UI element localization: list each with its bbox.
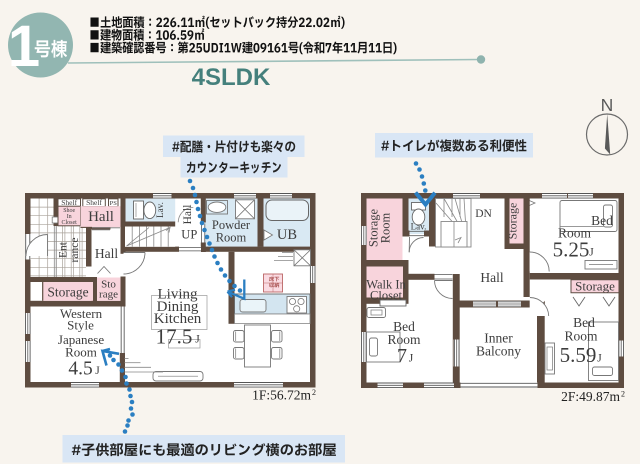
- svg-text:Hall: Hall: [182, 205, 194, 225]
- svg-text:5.59: 5.59: [560, 343, 597, 367]
- svg-text:4SLDK: 4SLDK: [192, 64, 271, 91]
- svg-text:Ent: Ent: [58, 241, 70, 258]
- svg-text:PS: PS: [110, 200, 118, 207]
- svg-text:Hall: Hall: [88, 209, 114, 225]
- svg-text:rage: rage: [99, 289, 118, 301]
- svg-text:Hall: Hall: [480, 270, 503, 285]
- svg-text:J: J: [597, 352, 602, 364]
- svg-text:Shelf: Shelf: [86, 198, 102, 207]
- svg-text:Room: Room: [216, 231, 247, 245]
- svg-text:Storage: Storage: [47, 285, 88, 300]
- svg-text:Lav.: Lav.: [411, 222, 427, 232]
- svg-text:Style: Style: [67, 318, 94, 333]
- svg-text:Storage: Storage: [575, 279, 615, 294]
- svg-text:5.25: 5.25: [553, 237, 590, 261]
- svg-text:J: J: [409, 353, 414, 365]
- svg-text:Hall: Hall: [95, 246, 118, 261]
- svg-text:17.5: 17.5: [156, 324, 193, 348]
- svg-text:UP: UP: [181, 228, 197, 242]
- svg-text:7: 7: [397, 345, 407, 367]
- svg-text:2: 2: [621, 390, 625, 399]
- svg-text:1F:56.72m: 1F:56.72m: [252, 388, 311, 403]
- svg-text:Storage: Storage: [506, 203, 520, 240]
- svg-text:1: 1: [8, 14, 40, 79]
- svg-text:Room: Room: [564, 329, 598, 344]
- svg-text:J: J: [589, 247, 594, 259]
- svg-text:Room: Room: [65, 345, 97, 360]
- svg-text:Closet: Closet: [370, 288, 402, 302]
- svg-text:Lav.: Lav.: [155, 202, 165, 218]
- svg-text:J: J: [95, 365, 100, 377]
- svg-text:DN: DN: [475, 208, 492, 220]
- svg-text:UB: UB: [277, 227, 297, 243]
- svg-text:rance: rance: [69, 238, 81, 263]
- svg-text:Balcony: Balcony: [476, 344, 521, 359]
- svg-text:J: J: [195, 334, 200, 346]
- svg-text:Bed: Bed: [591, 213, 613, 228]
- svg-text:N: N: [601, 95, 614, 115]
- svg-text:2F:49.87m: 2F:49.87m: [561, 389, 620, 404]
- svg-text:4.5: 4.5: [68, 359, 92, 380]
- svg-text:Room: Room: [379, 212, 393, 243]
- svg-text:2: 2: [312, 388, 316, 397]
- svg-text:Closet: Closet: [62, 220, 78, 226]
